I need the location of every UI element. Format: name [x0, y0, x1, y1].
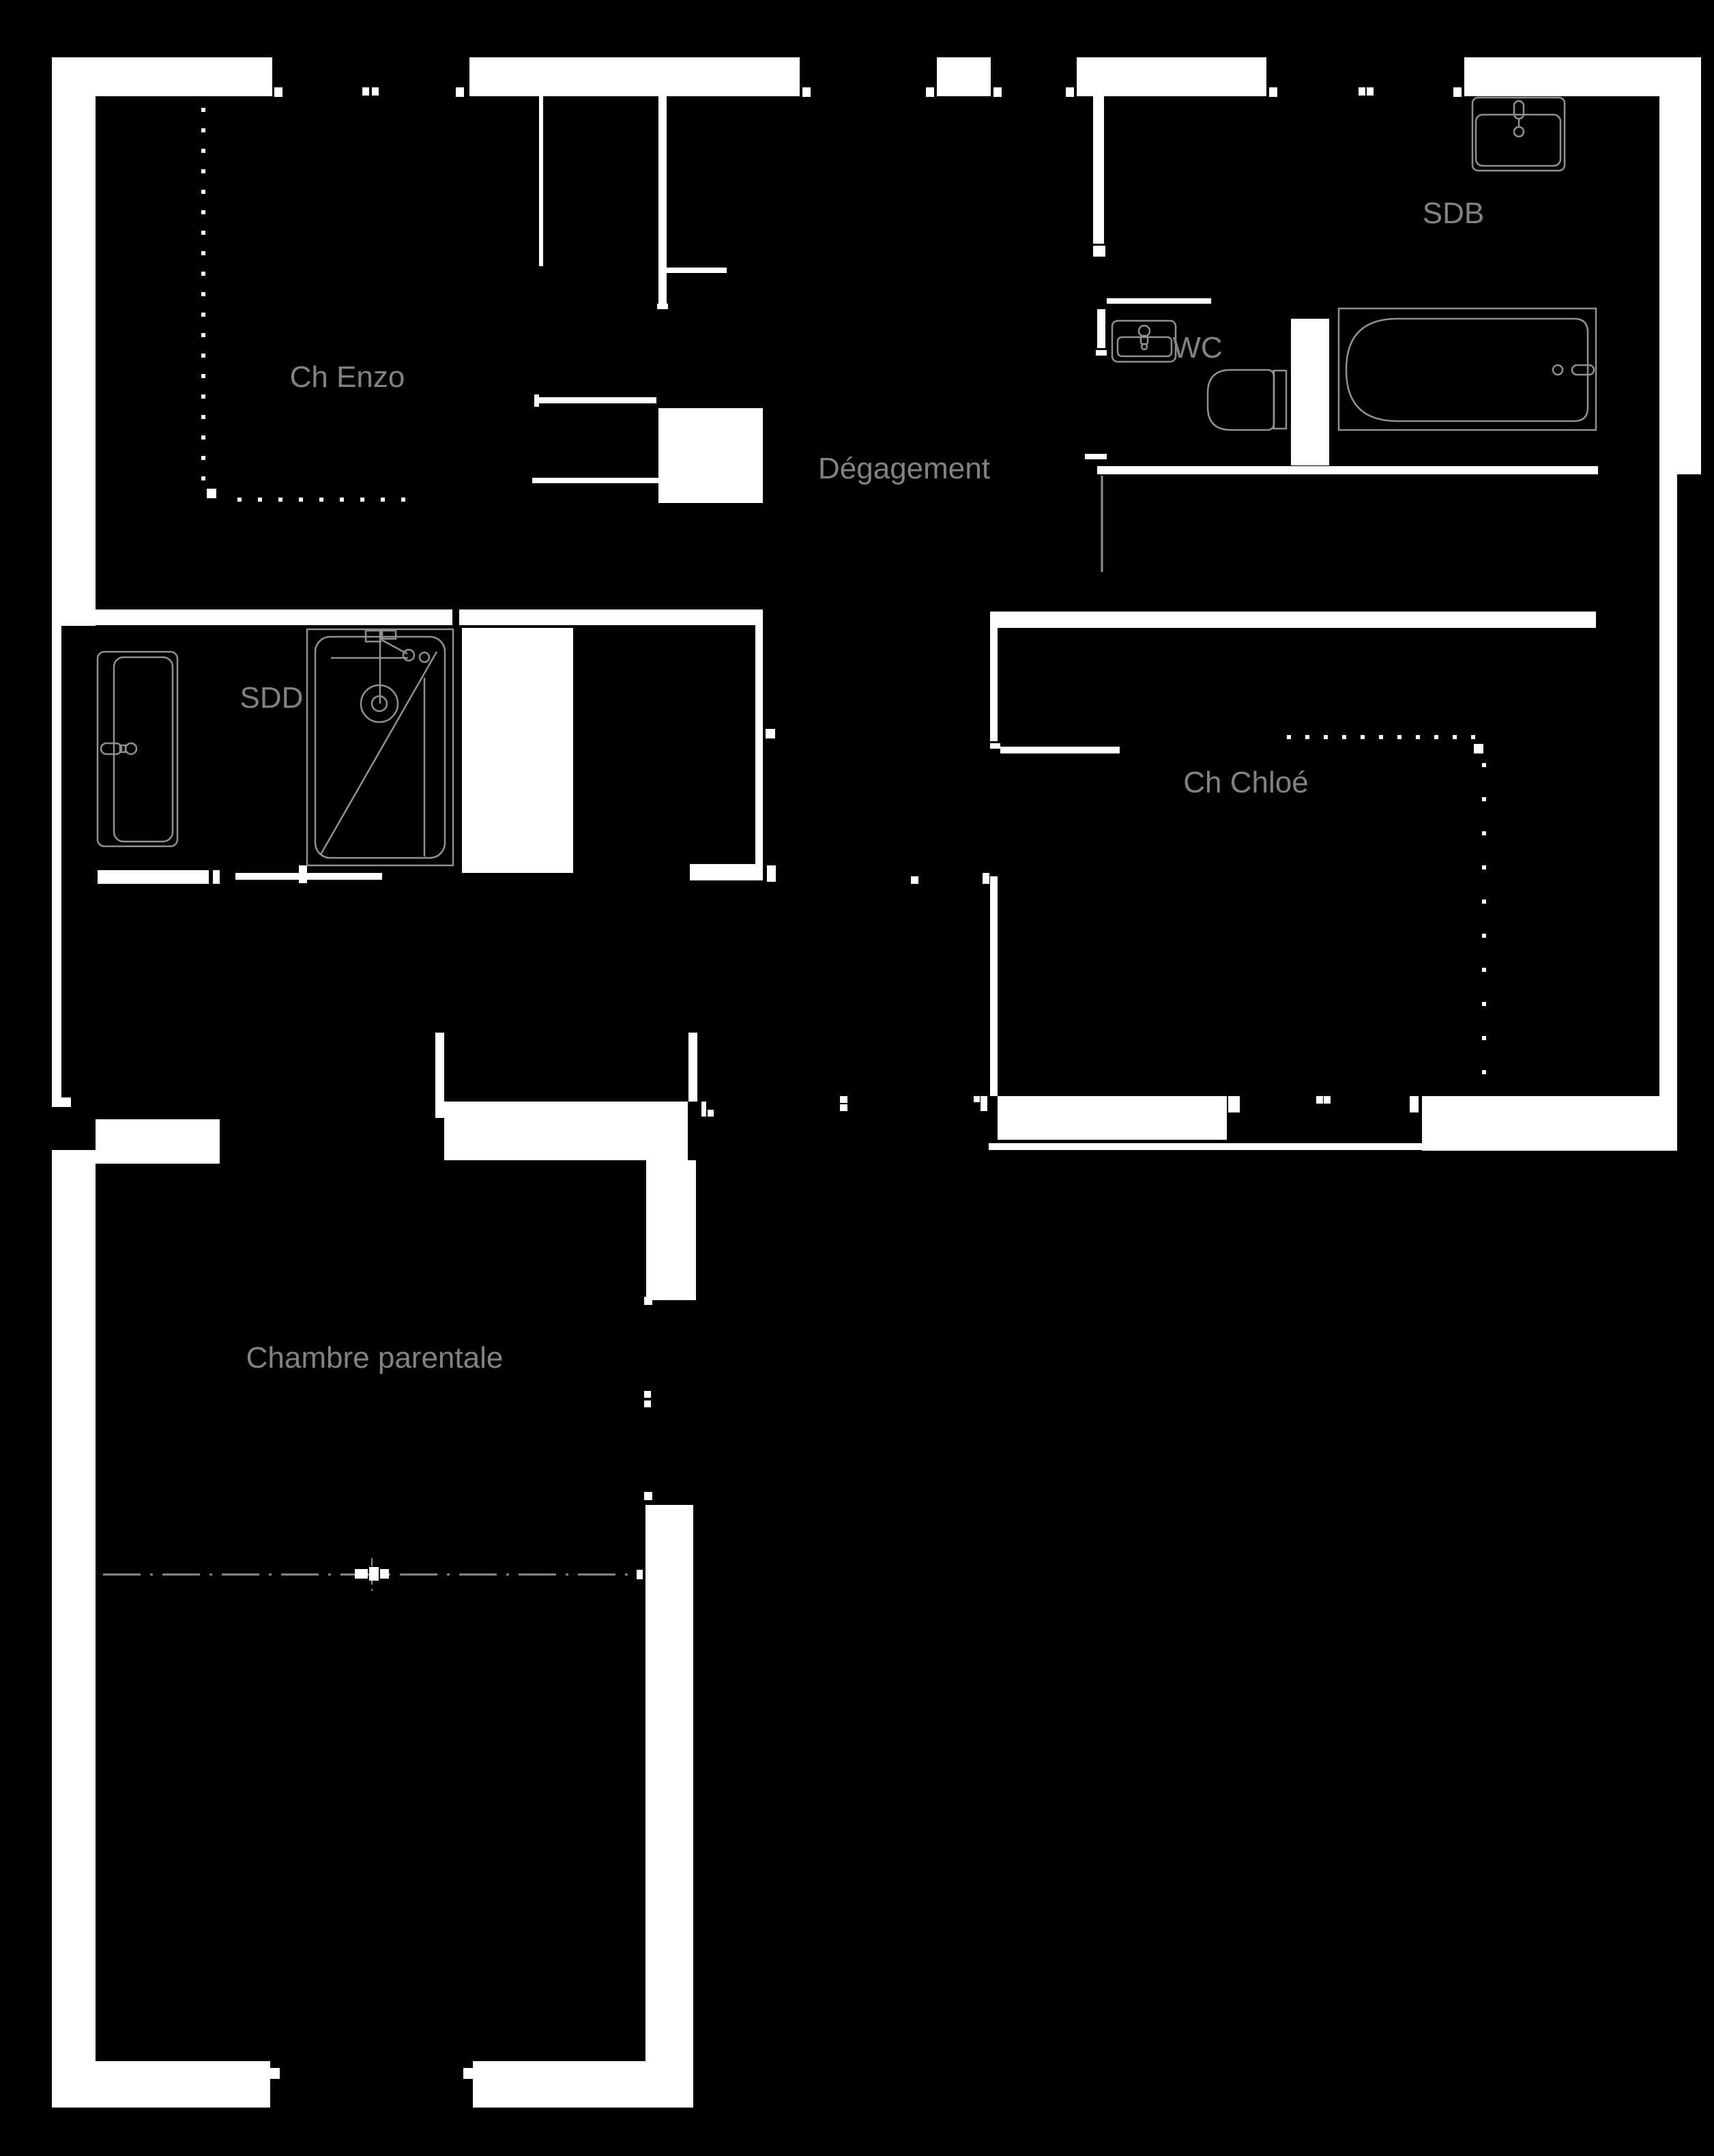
door-jamb: [644, 1400, 651, 1407]
floor-plan: Ch EnzoSDBWCDégagementSDDCh ChloéChambre…: [0, 0, 1714, 2156]
wall-segment: [235, 873, 382, 880]
dot: [1482, 865, 1486, 869]
wall-segment: [1000, 747, 1120, 753]
dot: [299, 498, 303, 502]
wall-segment: [667, 268, 727, 273]
dot: [201, 128, 205, 132]
dotted-line-chloe-vertical: [1482, 763, 1486, 1074]
wall-segment: [539, 96, 543, 266]
wall-segment: [1291, 319, 1329, 465]
room-label-ch-chloe: Ch Chloé: [1183, 766, 1308, 799]
wall-segment: [98, 870, 209, 884]
sdb-sink-icon: [1472, 98, 1565, 171]
dot: [1482, 900, 1486, 904]
door-jambs-layer: [61, 87, 1462, 2079]
dot: [201, 415, 205, 419]
dot: [201, 210, 205, 214]
dot: [201, 476, 205, 480]
dot: [201, 456, 205, 460]
door-jamb: [708, 1110, 714, 1117]
floor-plan-svg: Ch EnzoSDBWCDégagementSDDCh ChloéChambre…: [0, 0, 1714, 2153]
wall-segment: [998, 1096, 1227, 1140]
door-jamb: [644, 1391, 651, 1398]
door-jamb: [1066, 87, 1074, 97]
dotted-line-enzo-vertical: [201, 108, 205, 480]
section-lines-layer: [103, 476, 1102, 1591]
dot: [319, 498, 323, 502]
wall-segment: [1093, 96, 1104, 244]
dot: [201, 313, 205, 317]
toilet-icon: [1208, 370, 1286, 430]
wall-segment: [96, 1119, 220, 1164]
door-jamb: [657, 304, 668, 309]
door-jamb: [362, 87, 369, 96]
dot: [278, 498, 282, 502]
door-jamb: [463, 2068, 473, 2079]
wall-segment: [1097, 309, 1105, 348]
dot: [1471, 735, 1475, 739]
dot: [1361, 735, 1365, 739]
wall-segment: [989, 1143, 1426, 1150]
door-jamb: [1093, 246, 1105, 257]
wall-segment: [459, 609, 763, 625]
dot: [1397, 735, 1401, 739]
wall-segment: [532, 478, 658, 483]
dot: [1482, 1002, 1486, 1006]
dot: [201, 108, 205, 112]
room-label-ch-enzo: Ch Enzo: [290, 360, 405, 394]
door-jamb: [840, 1104, 847, 1111]
dot: [201, 251, 205, 255]
shower-icon: [307, 629, 453, 865]
door-jamb: [456, 87, 464, 97]
wall-segment: [1659, 474, 1677, 1151]
section-marker: [637, 1570, 643, 1579]
door-jamb: [981, 1096, 987, 1111]
wall-segment: [1107, 298, 1211, 304]
door-jamb: [990, 743, 1000, 749]
door-jamb: [1096, 350, 1107, 356]
dot: [201, 149, 205, 153]
room-label-sdb: SDB: [1423, 197, 1484, 230]
sdd-cupboard-door-icon: [98, 652, 177, 846]
dot: [201, 272, 205, 276]
room-label-wc: WC: [1172, 331, 1222, 364]
dot: [1482, 934, 1486, 938]
door-jamb: [1316, 1096, 1323, 1104]
door-jamb: [644, 1297, 652, 1305]
dotted-line-corner: [1474, 744, 1483, 753]
dot: [201, 292, 205, 296]
dot: [1482, 968, 1486, 972]
door-jamb: [644, 1492, 652, 1500]
dot: [201, 231, 205, 235]
door-jamb: [911, 876, 918, 884]
door-jamb: [766, 729, 775, 738]
dot: [201, 333, 205, 337]
dot: [1482, 831, 1486, 835]
wall-segment: [52, 1150, 96, 2108]
door-jamb: [274, 87, 282, 97]
dot: [1434, 735, 1438, 739]
section-marker: [355, 1569, 368, 1579]
door-jamb: [270, 2068, 280, 2079]
section-marker: [369, 1567, 379, 1581]
door-jamb: [372, 87, 379, 96]
door-jamb: [1359, 87, 1365, 96]
wall-segment: [52, 2061, 270, 2108]
dot: [381, 498, 385, 502]
dot: [201, 394, 205, 399]
wall-segment: [658, 408, 763, 503]
dot: [1482, 1070, 1486, 1074]
door-jamb: [802, 87, 811, 97]
wall-segment: [435, 1033, 444, 1118]
wall-segment: [52, 57, 96, 626]
dotted-line-enzo-horizontal: [237, 498, 405, 502]
wall-segment: [536, 397, 656, 403]
wall-segment: [61, 609, 452, 625]
dotted-line-corner: [207, 489, 216, 498]
door-jamb: [1096, 454, 1107, 459]
dot: [201, 374, 205, 378]
dot: [340, 498, 344, 502]
dot: [201, 435, 205, 440]
door-jamb: [1085, 454, 1096, 459]
door-jamb: [974, 1096, 980, 1102]
wall-segment: [444, 1102, 688, 1160]
door-jamb: [1410, 1096, 1419, 1112]
wall-segment: [1464, 57, 1659, 96]
dot: [401, 498, 405, 502]
door-jamb: [61, 1097, 71, 1107]
dot: [1287, 735, 1291, 739]
dot: [201, 169, 205, 173]
attic-dotted-lines-layer: [201, 108, 1486, 1074]
bathtub-icon: [1339, 308, 1596, 430]
wall-segment: [462, 628, 573, 873]
wall-segment: [690, 864, 763, 880]
dot: [1453, 735, 1457, 739]
door-jamb: [1228, 1096, 1240, 1112]
wall-segment: [52, 626, 61, 1107]
door-jamb: [1269, 87, 1277, 97]
wall-segment: [1422, 1096, 1659, 1151]
dot: [360, 498, 364, 502]
wall-segment: [645, 1505, 693, 2108]
door-jamb: [61, 1150, 71, 1160]
door-jamb: [840, 1096, 847, 1103]
door-jamb: [1324, 1096, 1331, 1104]
wall-segment: [990, 628, 998, 741]
dot: [1324, 735, 1328, 739]
dotted-line-chloe-horizontal: [1287, 735, 1475, 739]
wall-segment: [646, 1160, 696, 1300]
door-jamb: [701, 1102, 706, 1117]
wall-segment: [990, 876, 998, 1096]
wall-segment: [1077, 57, 1266, 96]
section-marker: [380, 1569, 389, 1579]
dot: [1305, 735, 1309, 739]
wall-segment: [469, 57, 800, 96]
dot: [1482, 797, 1486, 801]
room-label-chambre-parentale: Chambre parentale: [246, 1341, 504, 1375]
wall-segment: [990, 612, 1596, 628]
wall-segment: [1659, 57, 1701, 474]
dot: [1342, 735, 1346, 739]
dot: [1482, 1036, 1486, 1040]
wall-segment: [213, 870, 220, 884]
wall-segment: [1097, 466, 1598, 474]
door-jamb: [993, 87, 1002, 97]
dot: [1379, 735, 1383, 739]
dot: [1482, 763, 1486, 767]
wall-segment: [658, 89, 667, 304]
room-label-degagement: Dégagement: [818, 452, 990, 485]
door-jamb: [926, 87, 934, 97]
dot: [258, 498, 262, 502]
door-jamb: [1367, 87, 1374, 96]
wc-sink-icon: [1112, 321, 1176, 362]
wall-segment: [755, 612, 763, 878]
dot: [237, 498, 242, 502]
wall-segment: [937, 57, 991, 96]
room-label-sdd: SDD: [240, 681, 304, 715]
door-jamb: [983, 873, 989, 884]
door-jamb: [767, 865, 776, 882]
dot: [201, 354, 205, 358]
door-jamb: [1453, 87, 1462, 97]
dot: [201, 190, 205, 194]
dot: [1416, 735, 1420, 739]
wall-segment: [688, 1033, 697, 1102]
door-jamb: [299, 865, 307, 883]
